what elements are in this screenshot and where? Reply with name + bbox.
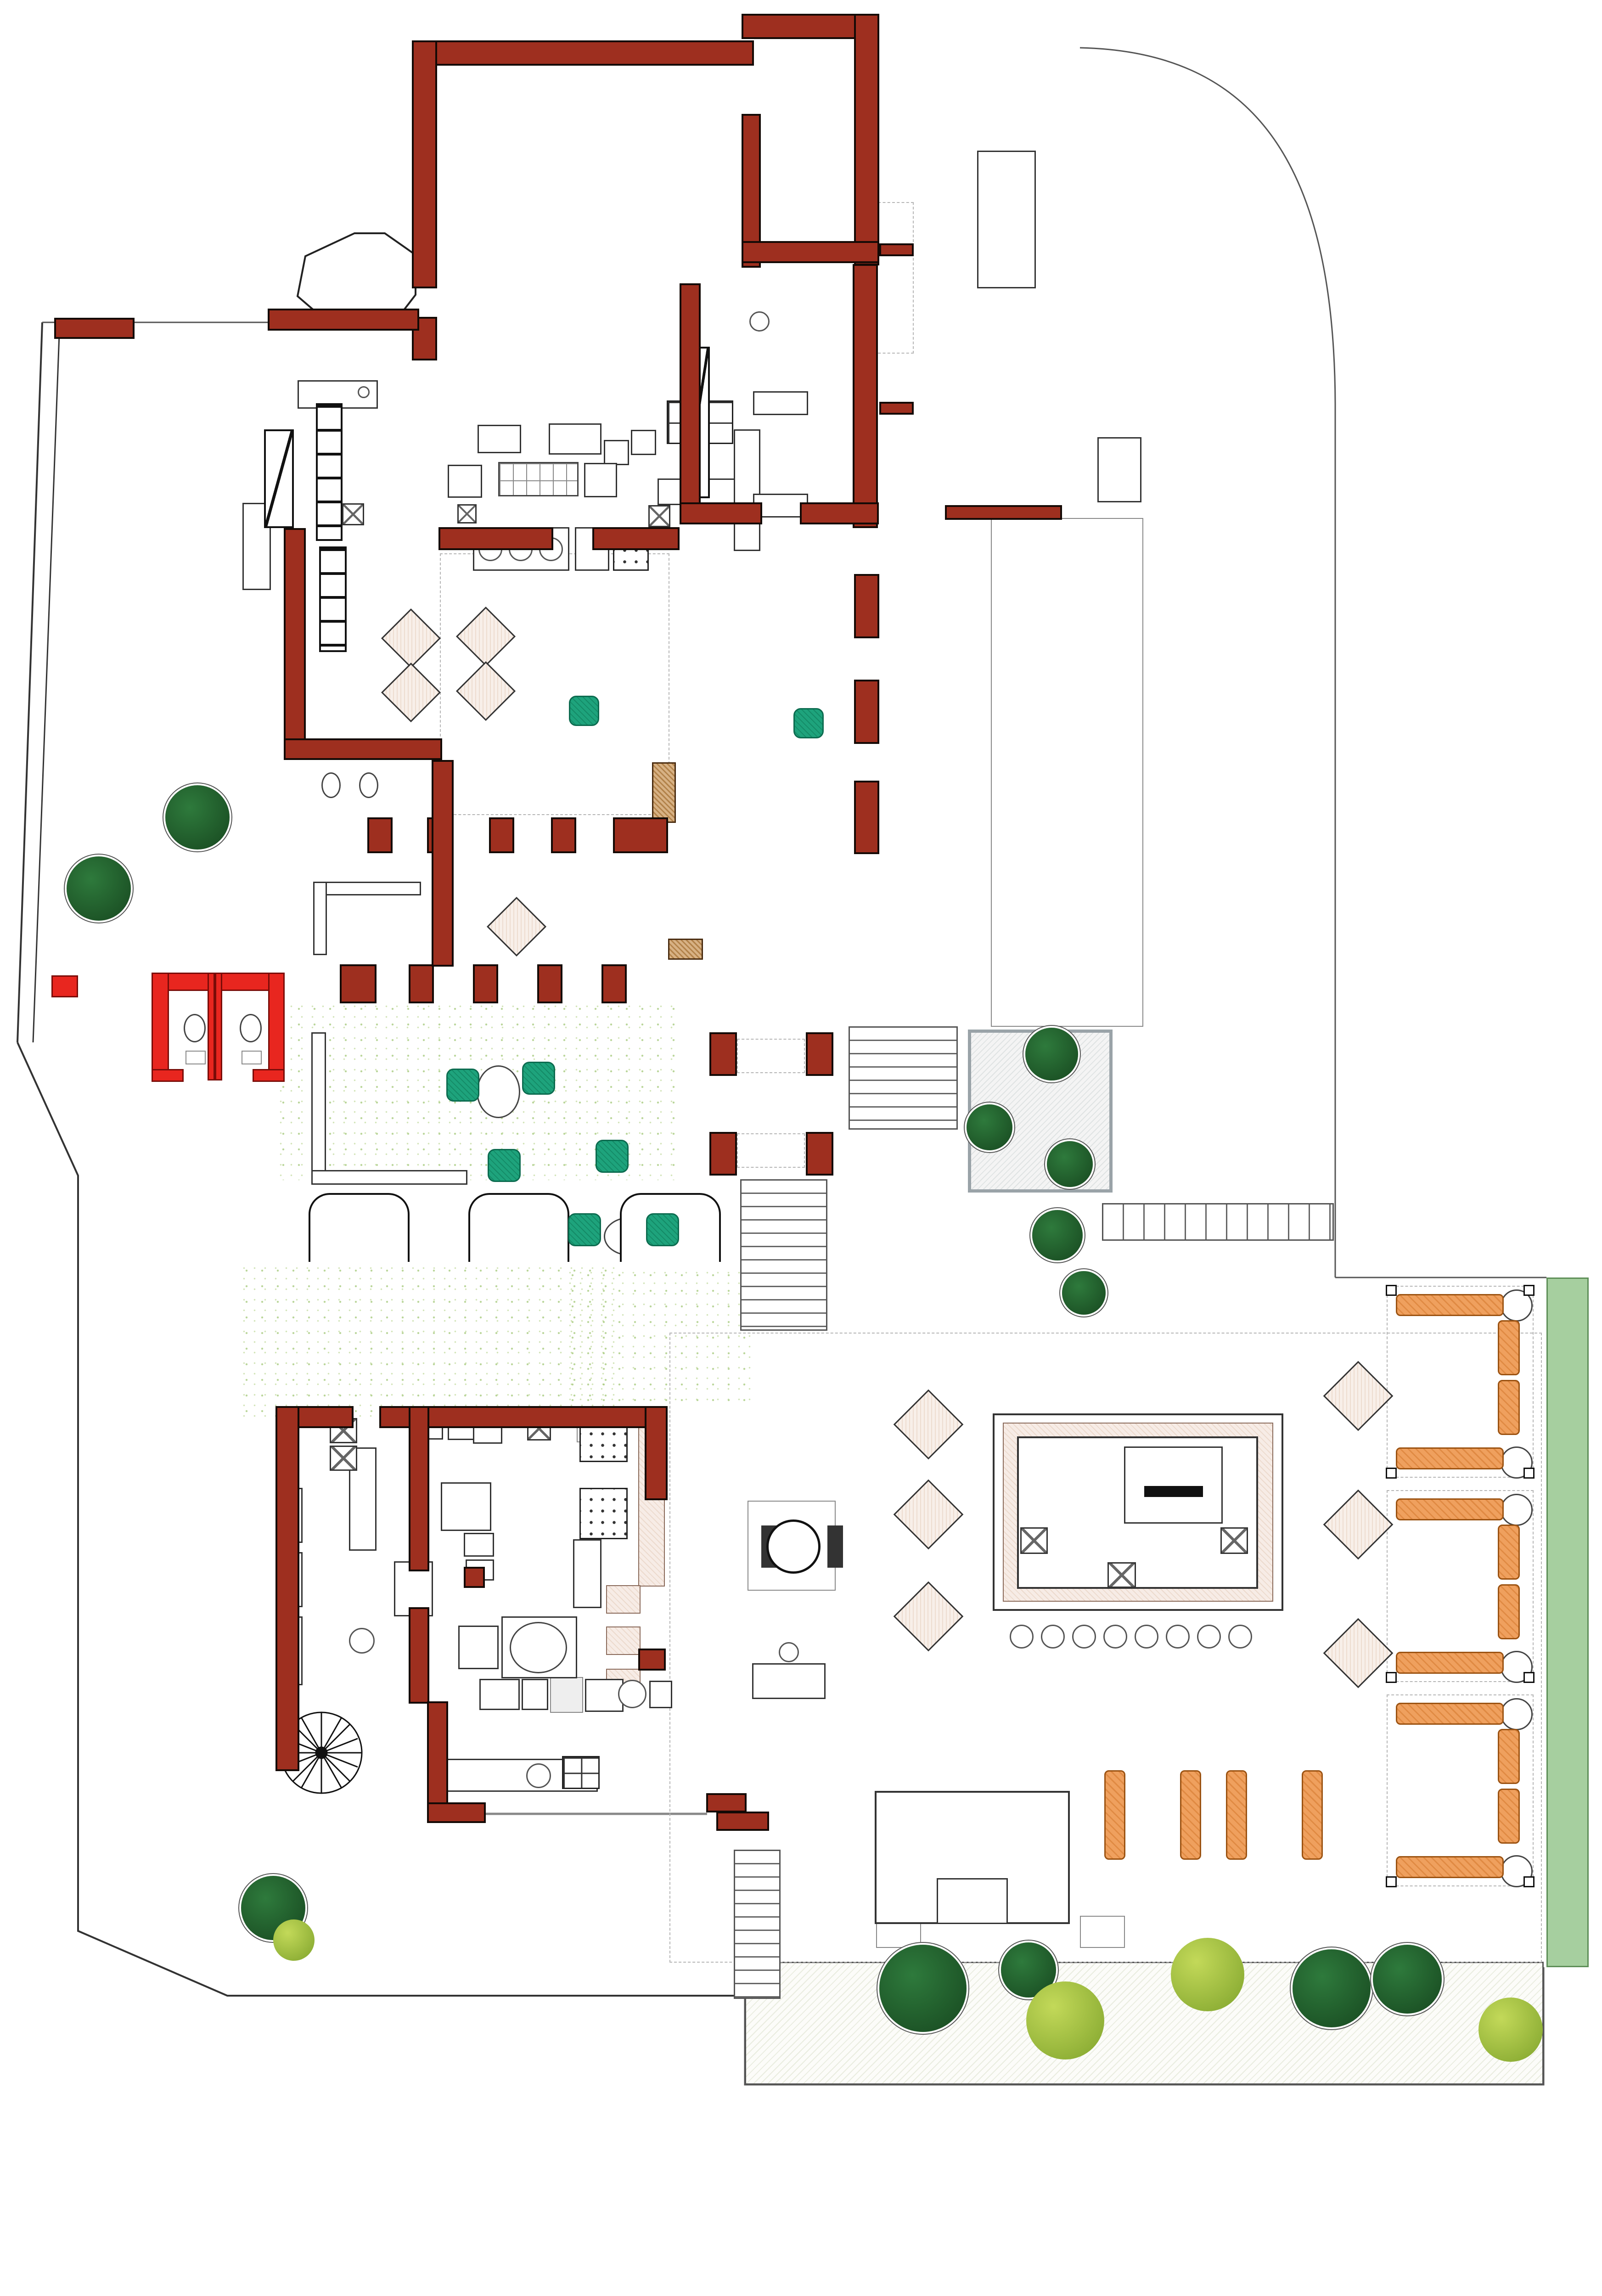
double-sink bbox=[330, 1446, 357, 1471]
cabana-sofa bbox=[1498, 1525, 1520, 1580]
wall-segment bbox=[409, 1406, 429, 1571]
griddle bbox=[631, 430, 656, 455]
pol-counter bbox=[668, 939, 703, 960]
griller bbox=[579, 1488, 628, 1539]
tree bbox=[273, 1919, 315, 1961]
post bbox=[1386, 1285, 1397, 1296]
fish-ice-bed bbox=[606, 1585, 641, 1614]
pickup-counter bbox=[734, 429, 760, 551]
crab-ice-bed bbox=[606, 1626, 641, 1655]
cabana-side-table bbox=[1501, 1494, 1533, 1526]
booth bbox=[309, 1193, 410, 1262]
electric-panel-space bbox=[873, 202, 914, 354]
green-chair bbox=[646, 1213, 679, 1246]
cabana-sofa bbox=[1498, 1729, 1520, 1784]
post bbox=[1386, 1468, 1397, 1479]
foyer-pier bbox=[709, 1132, 737, 1176]
wall-pier bbox=[367, 817, 393, 853]
wall-segment bbox=[645, 1406, 668, 1500]
wall-segment bbox=[275, 1406, 299, 1771]
bar-stool bbox=[1041, 1625, 1065, 1649]
wall-segment bbox=[638, 1649, 666, 1671]
tree bbox=[1171, 1938, 1244, 2011]
outdoor-zone2-strip bbox=[991, 518, 1143, 1027]
orange-sofa bbox=[1180, 1770, 1201, 1860]
wall-pier bbox=[340, 964, 377, 1003]
stairs bbox=[734, 1850, 781, 1999]
wall-pier bbox=[854, 680, 879, 744]
tree bbox=[1025, 1028, 1078, 1080]
green-strip bbox=[1546, 1277, 1589, 1967]
wall-pier bbox=[489, 817, 514, 853]
interior-layout-plan: 2 Seater2 Seater2 Seater2 Seater2 Seater… bbox=[0, 0, 1602, 2254]
wall-pier bbox=[854, 574, 879, 638]
washroom-wall bbox=[208, 973, 215, 1080]
toilet bbox=[184, 1014, 206, 1042]
foyer-pier bbox=[806, 1032, 833, 1076]
wall-segment bbox=[879, 243, 914, 256]
washroom-wall bbox=[268, 973, 285, 1080]
cabana-sofa bbox=[1396, 1498, 1504, 1520]
burner-range bbox=[319, 546, 347, 652]
candy-floss-machine bbox=[526, 1763, 551, 1788]
urinal bbox=[321, 772, 341, 798]
post bbox=[1523, 1285, 1535, 1296]
wall-segment bbox=[412, 40, 754, 66]
bar-stool bbox=[1103, 1625, 1127, 1649]
washroom-wall bbox=[152, 1069, 184, 1082]
cabana-sofa bbox=[1396, 1294, 1504, 1316]
foyer-pier bbox=[806, 1132, 833, 1176]
wall-segment bbox=[268, 309, 419, 331]
post bbox=[1523, 1468, 1535, 1479]
cabana-side-table bbox=[1501, 1698, 1533, 1730]
foyer-panel bbox=[737, 1039, 805, 1073]
bar-stool bbox=[1166, 1625, 1190, 1649]
sandwich-griller bbox=[522, 1679, 548, 1710]
pos-counter bbox=[652, 762, 676, 823]
post bbox=[1386, 1876, 1397, 1887]
cabana-sofa bbox=[1396, 1652, 1504, 1674]
post bbox=[1386, 1672, 1397, 1683]
tree bbox=[1047, 1141, 1093, 1187]
wall-segment bbox=[800, 502, 879, 524]
wood-fired-oven-dome bbox=[510, 1622, 567, 1673]
orange-sofa bbox=[1226, 1770, 1247, 1860]
planting-scatter bbox=[239, 1263, 615, 1419]
uc-refri bbox=[478, 425, 521, 453]
sink bbox=[342, 503, 364, 525]
cabana-sofa bbox=[1396, 1703, 1504, 1725]
l-sofa bbox=[311, 1032, 326, 1184]
wall-segment bbox=[409, 1607, 429, 1704]
bar-sink-right bbox=[1220, 1527, 1248, 1554]
sumo-sculpture-circle bbox=[766, 1519, 821, 1574]
post bbox=[1523, 1672, 1535, 1683]
washroom-wall bbox=[152, 973, 169, 1080]
ss-rack bbox=[264, 429, 294, 528]
l-sofa bbox=[313, 882, 421, 895]
orange-sofa bbox=[1302, 1770, 1323, 1860]
sink bbox=[457, 504, 477, 523]
wall-segment bbox=[592, 527, 680, 550]
post bbox=[1523, 1876, 1535, 1887]
baking-oven bbox=[441, 1482, 491, 1531]
foyer-pier bbox=[709, 1032, 737, 1076]
l-sofa bbox=[311, 1170, 467, 1185]
green-chair bbox=[488, 1149, 521, 1182]
wall-segment bbox=[680, 283, 701, 524]
door-arc bbox=[0, 2276, 39, 2296]
coffee-machine bbox=[550, 1677, 583, 1713]
vertical-prooving bbox=[464, 1533, 494, 1557]
bar-stool bbox=[1228, 1625, 1252, 1649]
wall-pier bbox=[473, 964, 498, 1003]
wall-segment bbox=[412, 40, 437, 288]
tree bbox=[67, 856, 131, 921]
toilet bbox=[240, 1014, 262, 1042]
frier bbox=[604, 440, 629, 465]
cabana-sofa bbox=[1498, 1380, 1520, 1435]
tree bbox=[165, 785, 230, 850]
tree bbox=[879, 1945, 967, 2032]
wall-segment bbox=[427, 1802, 486, 1823]
stairs bbox=[740, 1179, 827, 1331]
cabana-sofa bbox=[1396, 1447, 1504, 1469]
tree bbox=[967, 1104, 1012, 1150]
back-bar-black-counter bbox=[1144, 1486, 1203, 1497]
bar-sink-bottom bbox=[1107, 1562, 1136, 1588]
stairs bbox=[849, 1026, 958, 1130]
display-grid bbox=[562, 1756, 600, 1789]
wall-segment bbox=[716, 1812, 769, 1831]
boundary-marker bbox=[51, 975, 78, 997]
sub-woofer-right bbox=[1080, 1916, 1125, 1948]
wall-segment bbox=[706, 1793, 747, 1812]
cold-bain-marie bbox=[498, 462, 579, 496]
wall-segment bbox=[854, 14, 879, 265]
back-bar-island bbox=[1124, 1446, 1223, 1524]
wall-segment bbox=[742, 241, 879, 263]
sumo-flank bbox=[827, 1525, 843, 1568]
taylor-softy bbox=[618, 1680, 646, 1708]
cabana-sofa bbox=[1396, 1856, 1504, 1878]
bar-stool bbox=[1072, 1625, 1096, 1649]
l-sofa bbox=[313, 882, 327, 955]
tree bbox=[1032, 1210, 1083, 1261]
wall-segment bbox=[680, 502, 762, 524]
wall-segment bbox=[879, 402, 914, 415]
tree bbox=[1026, 1981, 1104, 2060]
wall-pier bbox=[551, 817, 576, 853]
wall-segment bbox=[945, 505, 1062, 520]
planetary-mixer bbox=[349, 1628, 375, 1654]
rack-shelf bbox=[753, 391, 808, 415]
bar-stool bbox=[1010, 1625, 1034, 1649]
wall-segment bbox=[427, 1701, 448, 1814]
cabana-sofa bbox=[1498, 1789, 1520, 1844]
dg-unit bbox=[977, 151, 1036, 288]
wall-segment bbox=[284, 528, 306, 760]
wall-segment bbox=[464, 1567, 485, 1588]
booth bbox=[468, 1193, 569, 1262]
tree bbox=[1373, 1945, 1442, 2014]
three-sink-unit bbox=[316, 403, 343, 541]
tree bbox=[1293, 1949, 1371, 2027]
marble-top-table bbox=[458, 1626, 499, 1669]
bar-sink-left bbox=[1020, 1527, 1048, 1554]
wall-pier bbox=[601, 964, 627, 1003]
green-chair bbox=[568, 1213, 601, 1246]
freezer bbox=[448, 465, 482, 498]
cabana-sofa bbox=[1498, 1584, 1520, 1639]
wall-pier bbox=[854, 781, 879, 854]
welcome-desk bbox=[752, 1663, 826, 1699]
wall-pier bbox=[537, 964, 562, 1003]
green-chair bbox=[522, 1062, 555, 1095]
four-door-ref bbox=[549, 423, 601, 455]
wall-segment bbox=[438, 527, 553, 550]
wall-segment bbox=[432, 760, 454, 967]
sake-barrel-wall bbox=[0, 2256, 275, 2276]
cabana-sofa bbox=[1498, 1320, 1520, 1375]
wall-segment bbox=[284, 738, 442, 760]
storekeeper-person-icon bbox=[749, 311, 770, 332]
urinal bbox=[359, 772, 378, 798]
welcome-desk-person bbox=[779, 1642, 799, 1662]
washbasin bbox=[185, 1051, 206, 1064]
tree bbox=[1478, 1998, 1543, 2062]
orange-sofa bbox=[1104, 1770, 1125, 1860]
tree bbox=[1062, 1271, 1106, 1315]
washbasin bbox=[242, 1051, 262, 1064]
green-chair bbox=[446, 1069, 479, 1102]
bar-stool bbox=[1135, 1625, 1158, 1649]
green-chair bbox=[569, 696, 599, 726]
bar-stool bbox=[1197, 1625, 1221, 1649]
wall-pier bbox=[613, 817, 668, 853]
hot-fudge bbox=[649, 1681, 672, 1708]
wall-pier bbox=[409, 964, 434, 1003]
sushi-pizza-makeline bbox=[573, 1539, 601, 1608]
foyer-panel bbox=[737, 1133, 805, 1168]
outdoor-table bbox=[477, 1065, 520, 1118]
washroom-wall bbox=[253, 1069, 285, 1082]
sink bbox=[648, 505, 670, 527]
dj-console bbox=[937, 1878, 1008, 1924]
planter bbox=[1097, 437, 1141, 502]
wall-segment bbox=[54, 318, 135, 339]
sink-hole bbox=[358, 386, 370, 398]
green-chair bbox=[793, 708, 824, 738]
freezer bbox=[584, 463, 617, 497]
stairs bbox=[1102, 1203, 1334, 1241]
green-chair bbox=[596, 1140, 629, 1173]
microwave bbox=[479, 1679, 520, 1710]
wall-segment bbox=[853, 264, 878, 528]
washroom-wall bbox=[215, 973, 222, 1080]
